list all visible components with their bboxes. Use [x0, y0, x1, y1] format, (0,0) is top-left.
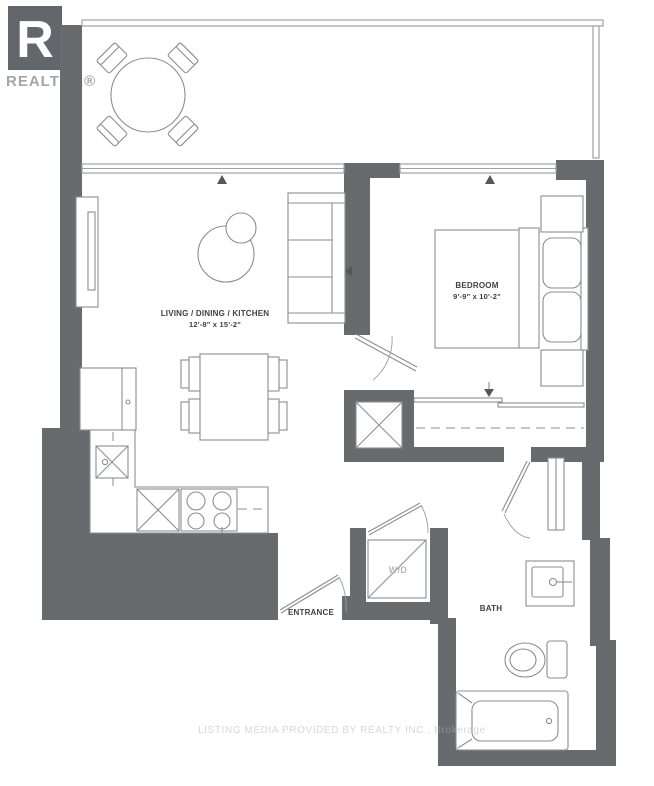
toilet — [505, 641, 567, 678]
bath-label: BATH — [480, 604, 502, 613]
bedroom-door — [355, 334, 417, 380]
wall-linen-right — [582, 447, 600, 540]
bedroom-closet — [414, 382, 584, 428]
wall-bath-left — [438, 618, 456, 766]
balcony-railing-top — [82, 20, 603, 26]
dining-chair-back — [279, 402, 287, 430]
faucet-dot — [102, 459, 107, 464]
living-window-marker — [217, 175, 227, 184]
patio-table — [111, 58, 185, 132]
bedroom: BEDROOM 9'-9" x 10'-2" — [355, 196, 588, 448]
closet-slider-panel — [498, 403, 584, 407]
headboard — [581, 228, 588, 350]
realtor-brand-text: REALTOR® — [6, 73, 96, 90]
wall-laundry-bottom — [348, 602, 448, 620]
shaft-column — [356, 402, 402, 448]
faucet-handle — [550, 579, 557, 586]
laundry-door — [368, 503, 428, 535]
living-room-dims: 12'-8" x 15'-2" — [189, 320, 241, 329]
nightstand-top — [541, 196, 583, 232]
entrance-label: ENTRANCE — [288, 608, 335, 617]
bedroom-dims: 9'-9" x 10'-2" — [453, 292, 501, 301]
dining-table — [200, 354, 268, 440]
laundry-closet: W/D — [368, 503, 428, 598]
dining-chair-back — [181, 360, 189, 388]
bathtub — [456, 691, 568, 750]
dining-chair-seat — [267, 357, 279, 391]
realtor-logo-letter: R — [16, 11, 54, 69]
linen-closet — [548, 458, 564, 530]
balcony-railing-right — [593, 26, 599, 158]
wall-bath-right-lower — [596, 640, 616, 766]
closet-slider-panel — [414, 398, 502, 402]
laundry-label: W/D — [389, 565, 408, 575]
bedroom-window-marker — [485, 175, 495, 184]
dishwasher — [137, 489, 179, 531]
stove — [181, 489, 237, 533]
lounge-chair — [198, 213, 256, 282]
wall-bedroom-right — [586, 176, 604, 462]
pillow — [543, 238, 581, 288]
bedroom-label: BEDROOM — [455, 281, 498, 290]
wall-window-pier — [370, 163, 400, 178]
dining-table-set — [181, 354, 287, 440]
living-room-label: LIVING / DINING / KITCHEN — [161, 309, 270, 318]
toilet-tank — [547, 641, 567, 678]
kitchen-sink — [96, 446, 128, 478]
dining-chair-seat — [189, 399, 201, 433]
dining-chair-back — [181, 402, 189, 430]
dining-chair-seat — [267, 399, 279, 433]
balcony — [82, 20, 603, 158]
closet-marker — [484, 389, 494, 397]
sofa — [288, 193, 345, 323]
bath-door — [502, 461, 530, 538]
wall-bottom-left-mass — [42, 533, 278, 620]
pillow — [543, 292, 581, 342]
bathroom: BATH — [456, 458, 574, 750]
nightstand-bottom — [541, 350, 583, 386]
dining-chair-back — [279, 360, 287, 388]
floorplan-image: R REALTOR® — [0, 0, 654, 786]
dining-chair-seat — [189, 357, 201, 391]
wall-under-closet-left — [344, 447, 504, 462]
wall-kitchen-left-block — [42, 428, 90, 550]
realtor-logo: R REALTOR® — [6, 6, 96, 90]
watermark-text: LISTING MEDIA PROVIDED BY REALTY INC., B… — [198, 725, 486, 736]
fridge — [80, 368, 136, 430]
entrance: ENTRANCE — [280, 575, 346, 617]
vanity-sink — [526, 561, 574, 606]
toilet-bowl — [505, 643, 545, 677]
tv-console — [76, 197, 98, 307]
wall-bath-bottom — [440, 750, 616, 766]
wall-living-bedroom — [344, 163, 370, 335]
wall-bath-right-upper — [590, 538, 610, 646]
bed-frame — [519, 228, 539, 348]
